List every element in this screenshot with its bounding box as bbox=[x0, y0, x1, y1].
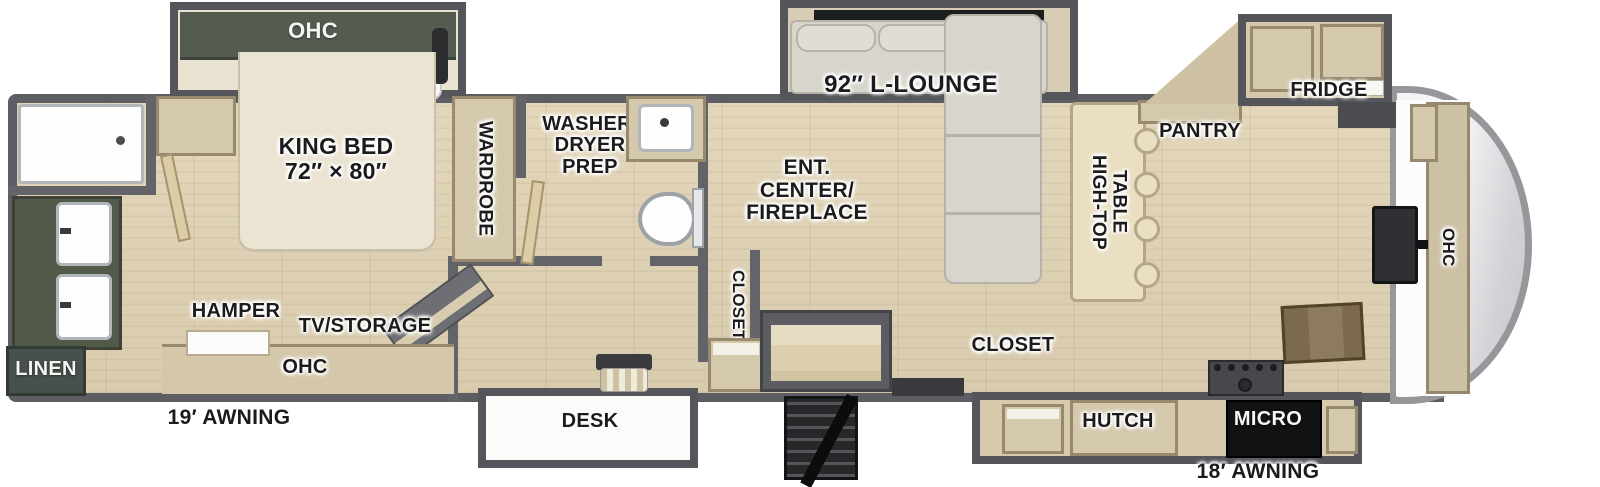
cooktop-stove bbox=[1208, 360, 1284, 396]
toilet-bowl bbox=[638, 192, 696, 246]
burner-icon bbox=[1228, 364, 1235, 371]
pantry-angled-wall bbox=[1144, 16, 1244, 104]
micro-label: MICRO bbox=[1222, 406, 1314, 434]
fridge-label: FRIDGE bbox=[1272, 78, 1386, 104]
faucet-icon bbox=[60, 302, 71, 308]
king-bed-label: KING BED 72″ × 80″ bbox=[240, 126, 432, 192]
entry-cabinet bbox=[708, 338, 764, 392]
end-cabinet bbox=[1326, 406, 1358, 454]
kitchen-counter-top bbox=[1338, 102, 1402, 128]
burner-center-icon bbox=[1238, 378, 1252, 392]
awning-front-label: 18′ AWNING bbox=[1172, 458, 1344, 486]
burner-icon bbox=[1256, 364, 1263, 371]
desk-chair-seat bbox=[600, 368, 648, 392]
linen-label: LINEN bbox=[6, 352, 86, 388]
high-top-table-label: HIGH-TOP TABLE bbox=[1076, 108, 1140, 296]
shower-pan bbox=[18, 104, 144, 184]
l-lounge-label: 92″ L-LOUNGE bbox=[798, 70, 1024, 100]
desk-label: DESK bbox=[540, 408, 640, 436]
wardrobe-label: WARDROBE bbox=[456, 102, 512, 256]
sofa-back-cushion bbox=[796, 24, 876, 52]
entry-cabinet-top bbox=[713, 343, 759, 355]
faucet-icon bbox=[660, 118, 669, 127]
lounge-chaise bbox=[944, 14, 1042, 284]
fridge-cabinet bbox=[1320, 24, 1384, 80]
hamper-label: HAMPER bbox=[180, 300, 292, 324]
ent-center-fireplace-cabinet bbox=[760, 310, 892, 392]
faucet-icon bbox=[60, 228, 71, 234]
burner-icon bbox=[1270, 364, 1277, 371]
wall-shower-bottom bbox=[8, 186, 156, 195]
wall-shower-right bbox=[146, 94, 156, 194]
front-upper-cabinet bbox=[1410, 104, 1438, 162]
entry-steps bbox=[784, 396, 858, 480]
closet-cabinet bbox=[1002, 404, 1064, 454]
awning-rear-label: 19′ AWNING bbox=[146, 404, 312, 432]
rv-floorplan-canvas: LINEN OHC KING BED 72″ × 80″ WARDROBE HA… bbox=[0, 0, 1600, 487]
pantry-label: PANTRY bbox=[1144, 118, 1256, 146]
faucet-icon bbox=[1416, 240, 1428, 249]
ent-center-shelf bbox=[771, 325, 881, 381]
bedroom-ohc-label: OHC bbox=[258, 16, 368, 46]
front-ohc-label: OHC bbox=[1432, 210, 1464, 284]
burner-icon bbox=[1214, 364, 1221, 371]
toilet-tank bbox=[692, 188, 704, 248]
bedroom-dresser bbox=[156, 96, 236, 156]
cabinet-top-band bbox=[1007, 409, 1059, 419]
hamper-box bbox=[186, 330, 270, 356]
bedroom-lower-ohc-label: OHC bbox=[268, 356, 342, 380]
hutch-label: HUTCH bbox=[1066, 408, 1170, 436]
wall-laundry-bottom-b bbox=[650, 256, 708, 266]
burner-icon bbox=[1242, 364, 1249, 371]
kitchen-sink bbox=[1372, 206, 1418, 284]
tv-storage-label: TV/STORAGE bbox=[286, 314, 444, 340]
laundry-sink bbox=[638, 104, 694, 152]
kitchen-island-cabinet bbox=[1281, 302, 1366, 364]
shower-drain-icon bbox=[116, 136, 125, 145]
vanity-sink-1 bbox=[56, 202, 112, 266]
ent-center-fireplace-label: ENT. CENTER/ FIREPLACE bbox=[728, 146, 886, 236]
counter-sink-insert bbox=[892, 378, 964, 396]
kitchen-closet-label: CLOSET bbox=[956, 332, 1070, 360]
step-handrail bbox=[800, 394, 858, 487]
